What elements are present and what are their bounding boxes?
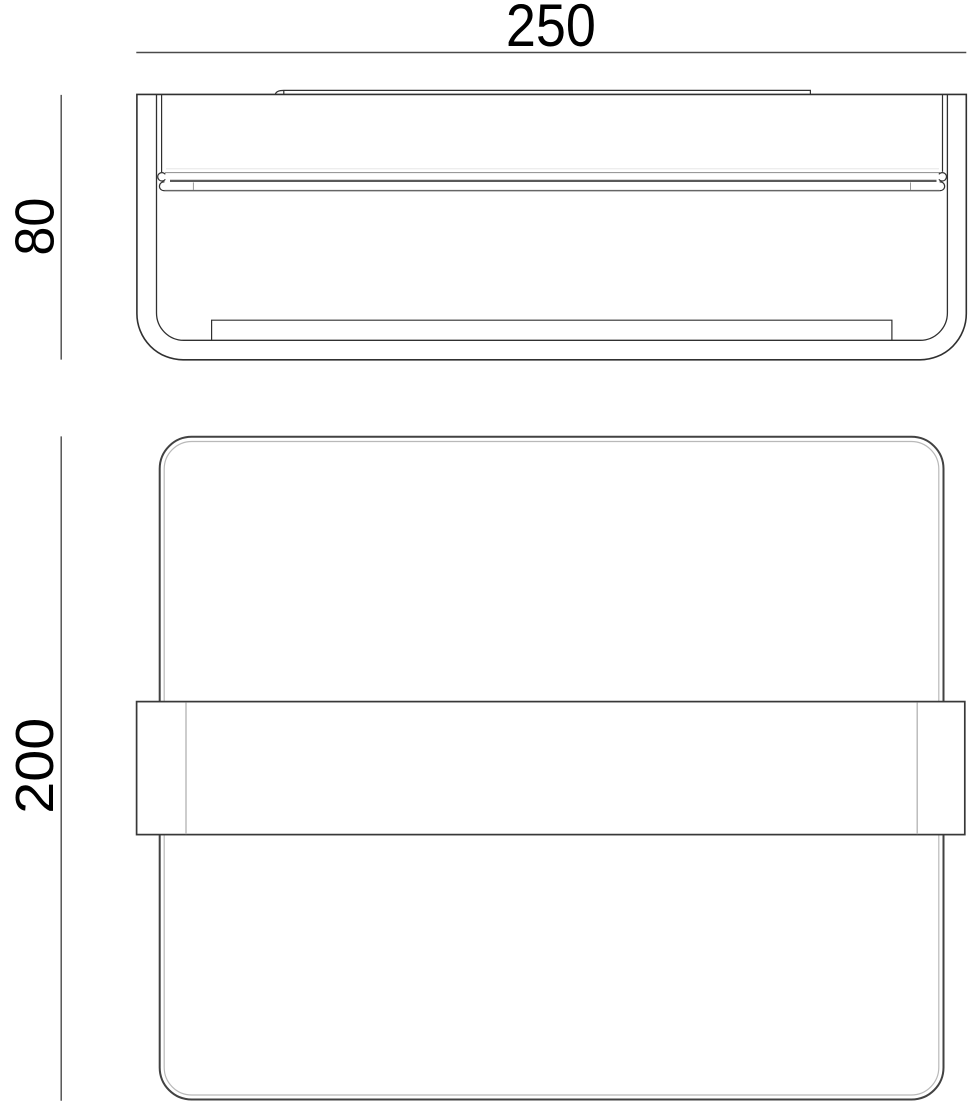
svg-text:250: 250 xyxy=(506,0,596,59)
svg-text:200: 200 xyxy=(6,718,65,814)
svg-text:80: 80 xyxy=(4,198,66,256)
